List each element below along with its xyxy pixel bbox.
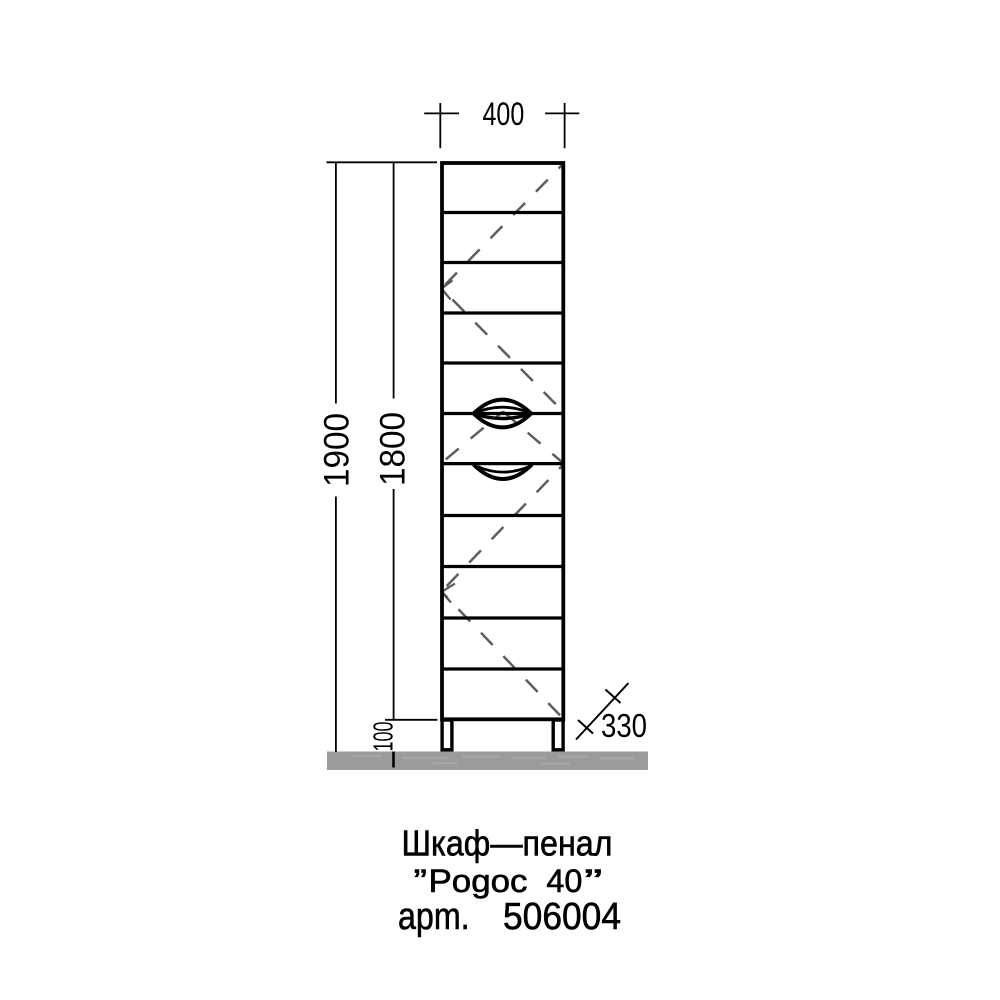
svg-text:330: 330 xyxy=(601,707,647,744)
svg-text:”: ” xyxy=(584,863,603,899)
svg-text:Pogoc: Pogoc xyxy=(429,863,528,899)
svg-text:”: ” xyxy=(414,863,428,899)
svg-text:Шкаф—пенал: Шкаф—пенал xyxy=(402,823,613,864)
svg-text:1800: 1800 xyxy=(374,412,413,486)
svg-text:100: 100 xyxy=(368,722,399,752)
svg-text:1900: 1900 xyxy=(318,413,357,487)
svg-text:40: 40 xyxy=(546,863,582,899)
svg-text:apm.: apm. xyxy=(398,896,470,938)
svg-text:400: 400 xyxy=(483,96,525,132)
svg-text:506004: 506004 xyxy=(503,896,621,938)
